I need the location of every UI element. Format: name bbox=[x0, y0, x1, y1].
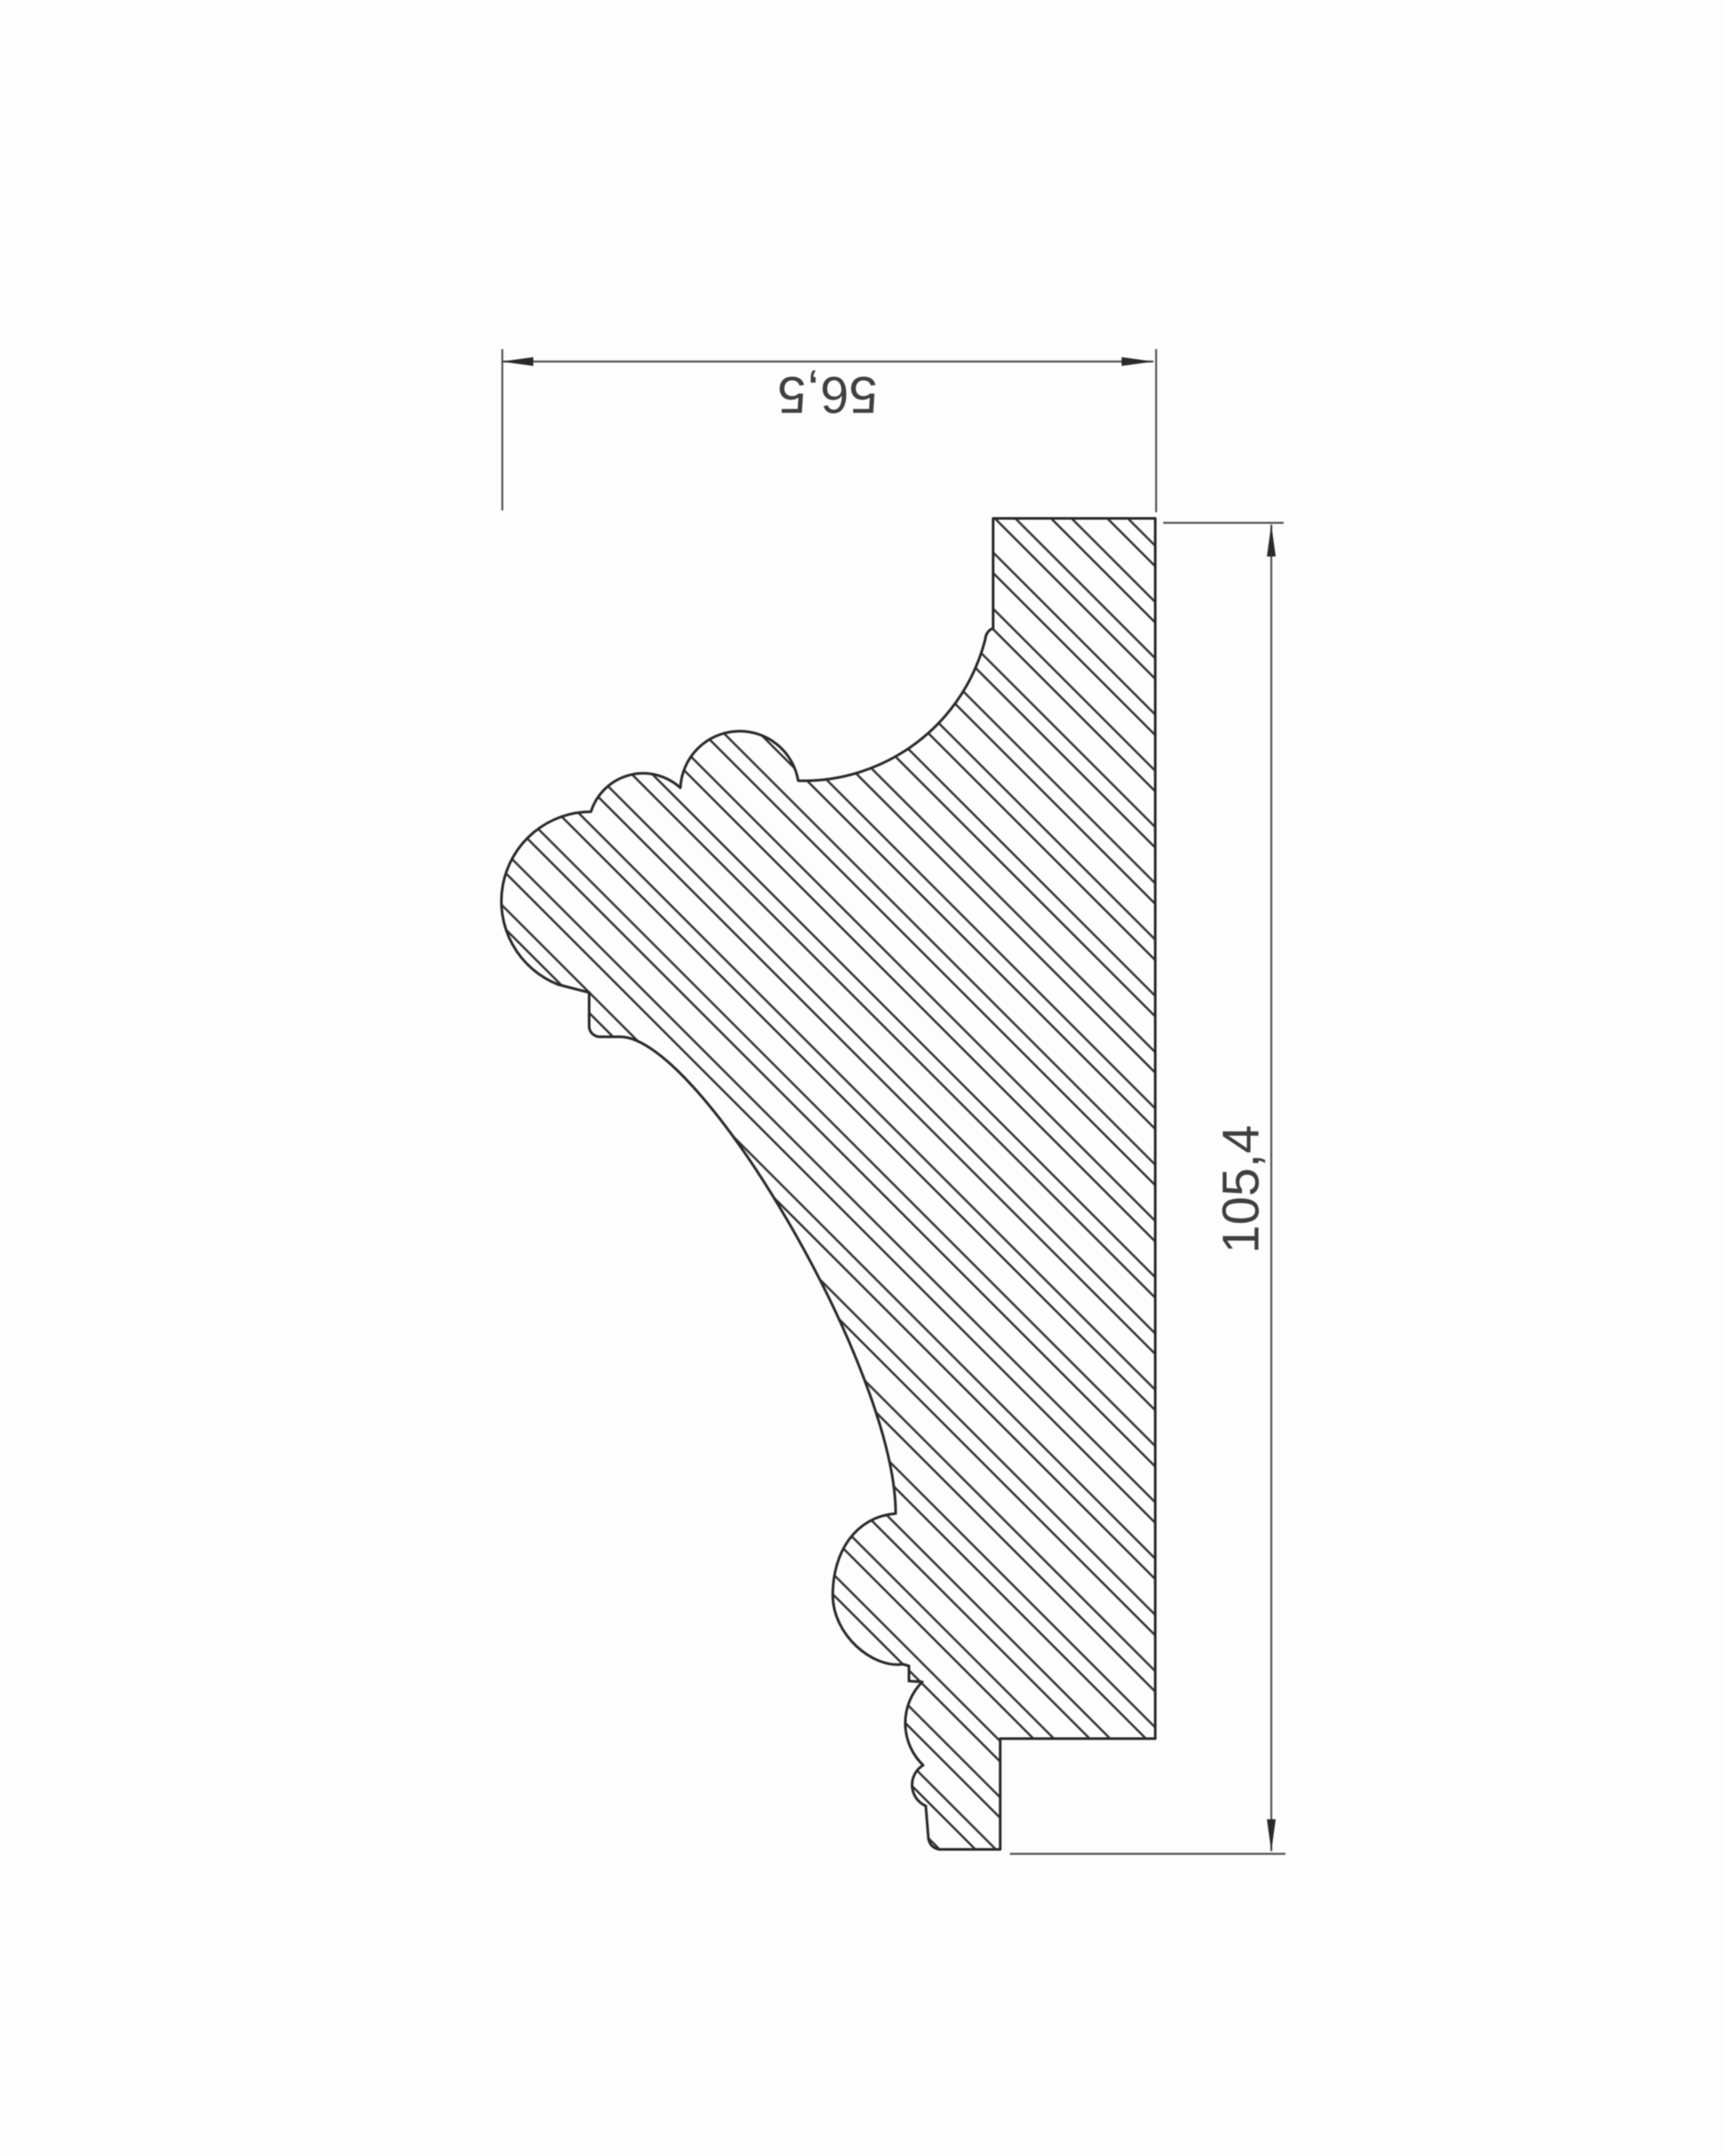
svg-text:56,5: 56,5 bbox=[778, 366, 878, 424]
svg-text:105,4: 105,4 bbox=[1213, 1125, 1270, 1253]
